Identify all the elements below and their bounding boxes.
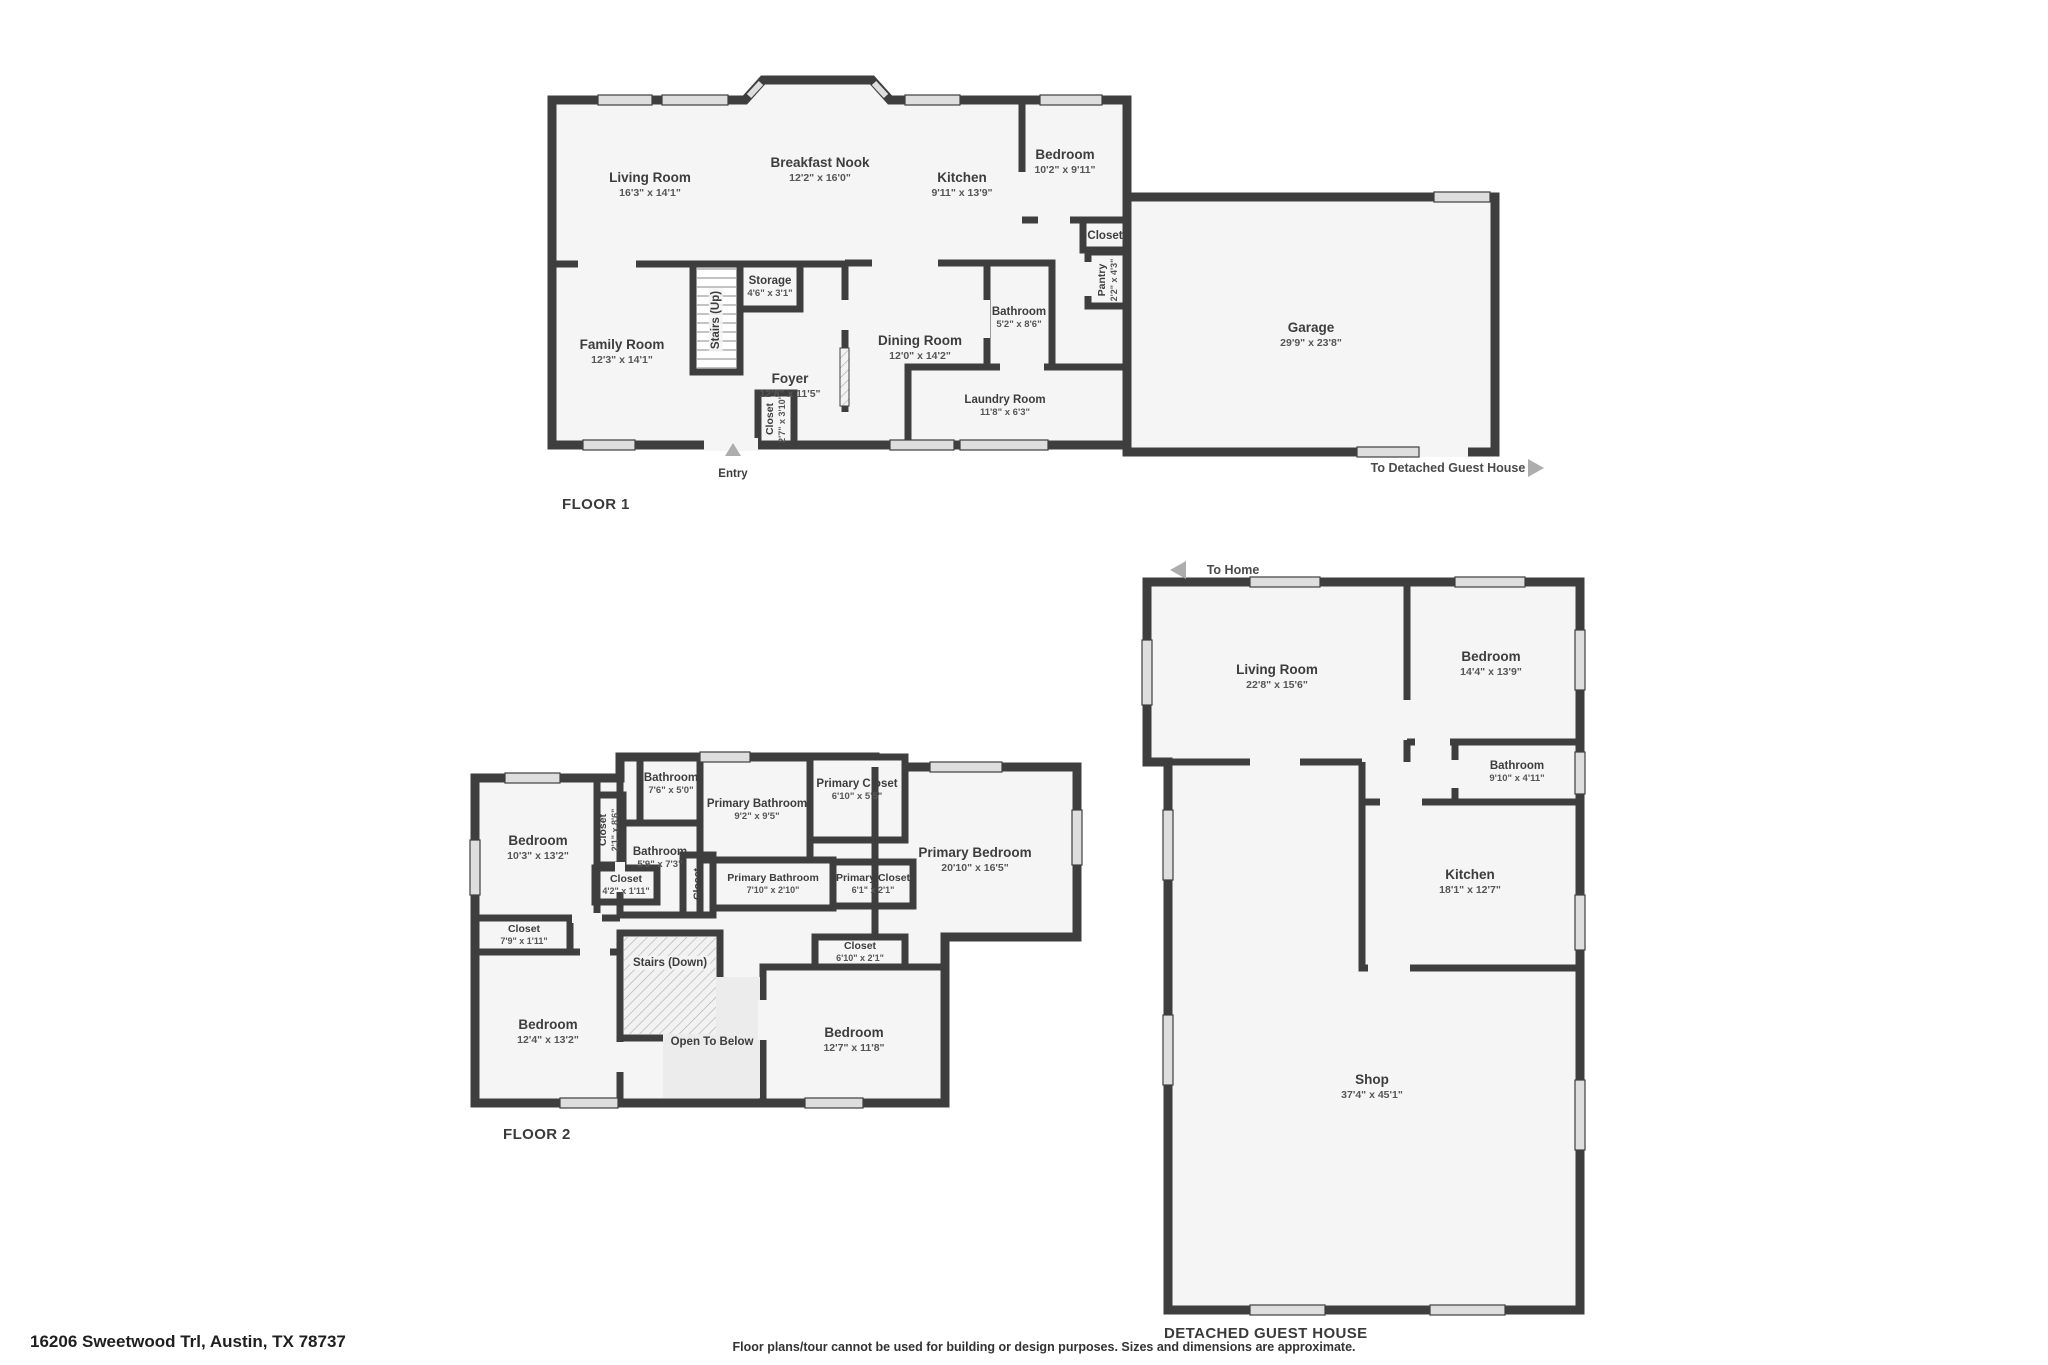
floorplan-canvas: Living Room16'3" x 14'1" Breakfast Nook1…	[0, 0, 2048, 1365]
to-home-link[interactable]: To Home	[1207, 563, 1260, 577]
to-home-arrow-icon	[1170, 561, 1186, 579]
stairs-down-hatch	[624, 937, 716, 1034]
to-detached-guest-house-link[interactable]: To Detached Guest House	[1371, 461, 1526, 475]
property-address: 16206 Sweetwood Trl, Austin, TX 78737	[30, 1332, 346, 1352]
floor2-title: FLOOR 2	[503, 1126, 571, 1143]
floor2-shell	[475, 757, 1077, 1103]
floor2-plan	[470, 752, 1082, 1108]
floor1-title: FLOOR 1	[562, 496, 630, 513]
disclaimer-text: Floor plans/tour cannot be used for buil…	[719, 1340, 1369, 1354]
guest-house-plan	[1142, 561, 1585, 1315]
stairs-up-treads	[697, 268, 736, 368]
floorplan-drawing	[0, 0, 2048, 1365]
to-guest-house-arrow-icon	[1528, 459, 1544, 477]
floor1-plan	[552, 80, 1544, 477]
